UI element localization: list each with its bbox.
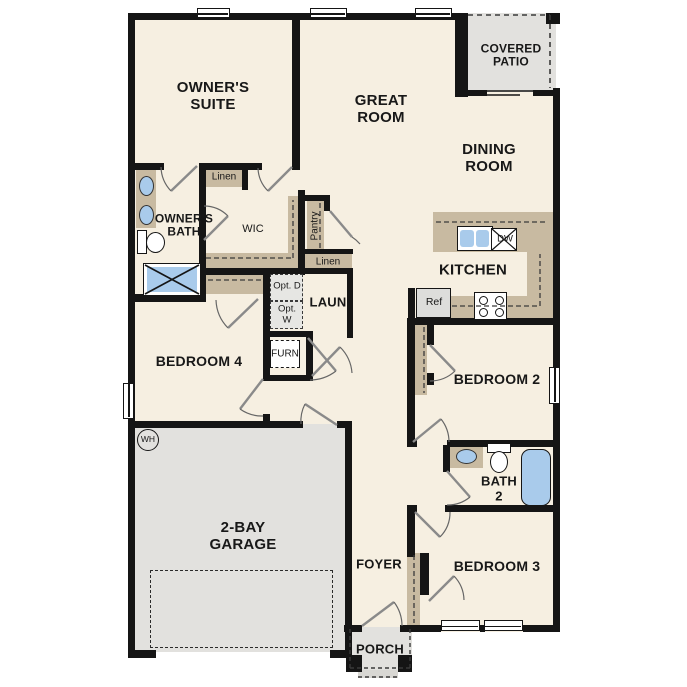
room-label-wic: WIC — [242, 223, 263, 235]
room-label-bedroom3: BEDROOM 3 — [454, 559, 541, 575]
plan-linework-overlay — [0, 0, 687, 687]
equip-label-refrigerator: Ref — [426, 297, 442, 309]
room-label-dining-room: DINING ROOM — [456, 142, 522, 176]
equip-label-dishwasher: DW — [497, 235, 513, 246]
room-label-bath2: BATH 2 — [478, 474, 520, 503]
room-label-porch: PORCH — [356, 643, 404, 658]
room-label-covered-patio: COVERED PATIO — [470, 43, 552, 70]
sliding-door — [487, 91, 533, 95]
equip-label-opt-washer: Opt. W — [273, 304, 301, 325]
closet-label-linen1: Linen — [212, 171, 236, 182]
equip-label-furnace: FURN — [271, 348, 299, 359]
closet-label-linen2: Linen — [316, 256, 340, 267]
room-label-foyer: FOYER — [356, 558, 402, 573]
closet-label-pantry: Pantry — [309, 212, 320, 241]
equip-label-water-heater: WH — [141, 435, 155, 445]
room-label-great-room: GREAT ROOM — [346, 93, 416, 127]
room-label-owners-bath: OWNER'S BATH — [144, 213, 224, 240]
shower-x — [145, 265, 199, 294]
room-label-kitchen: KITCHEN — [439, 263, 507, 280]
room-label-laundry: LAUN — [310, 296, 347, 311]
equip-label-opt-dryer: Opt. D — [273, 282, 301, 293]
room-label-bedroom2: BEDROOM 2 — [454, 372, 541, 388]
floor-plan: OWNER'S SUITE GREAT ROOM COVERED PATIO D… — [0, 0, 687, 687]
room-label-bedroom4: BEDROOM 4 — [156, 354, 243, 370]
room-label-owners-suite: OWNER'S SUITE — [166, 80, 261, 114]
room-label-garage: 2-BAY GARAGE — [197, 520, 289, 554]
